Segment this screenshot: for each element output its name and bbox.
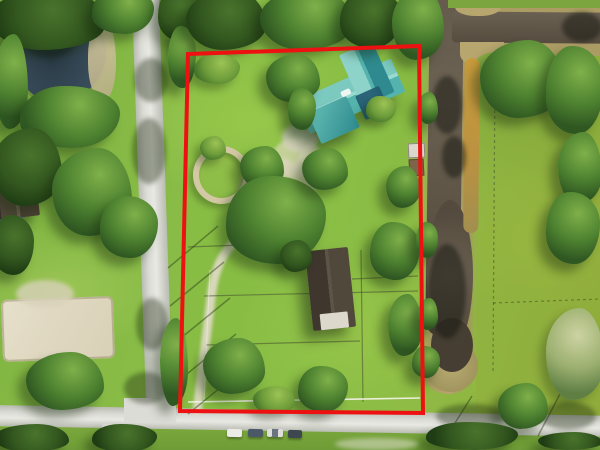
parcel-boundary-outline: [0, 0, 600, 450]
aerial-photo: [0, 0, 600, 450]
